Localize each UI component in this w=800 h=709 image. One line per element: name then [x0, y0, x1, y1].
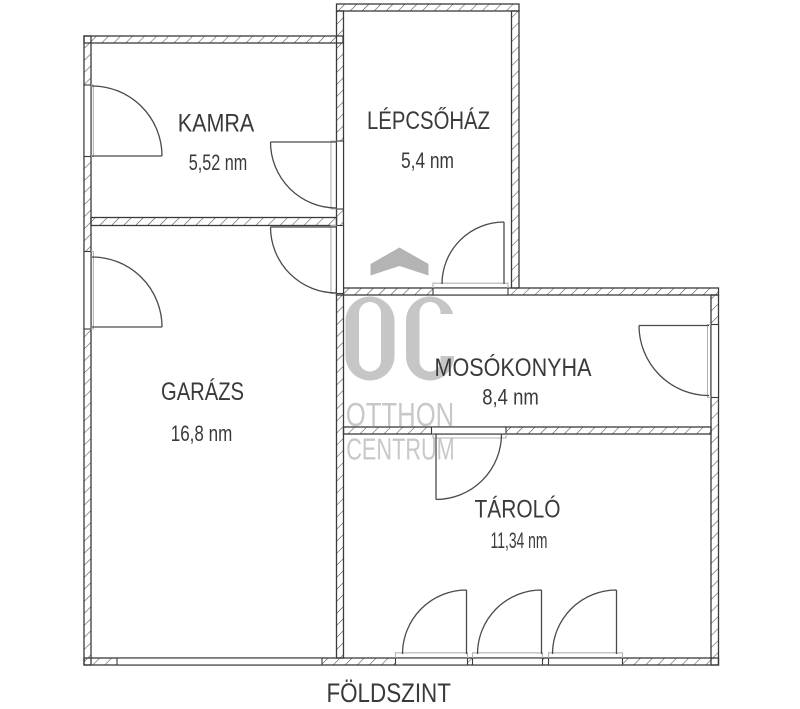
- svg-text:16,8 nm: 16,8 nm: [171, 421, 233, 446]
- svg-text:MOSÓKONYHA: MOSÓKONYHA: [435, 353, 592, 382]
- svg-text:11,34 nm: 11,34 nm: [491, 528, 548, 553]
- svg-text:8,4 nm: 8,4 nm: [482, 385, 539, 410]
- svg-text:TÁROLÓ: TÁROLÓ: [475, 495, 561, 524]
- svg-text:CENTRUM: CENTRUM: [346, 432, 455, 467]
- svg-text:5,52 nm: 5,52 nm: [189, 150, 248, 175]
- svg-text:FÖLDSZINT: FÖLDSZINT: [326, 678, 451, 708]
- svg-text:KAMRA: KAMRA: [178, 110, 255, 138]
- svg-text:LÉPCSŐHÁZ: LÉPCSŐHÁZ: [367, 106, 490, 135]
- svg-text:GARÁZS: GARÁZS: [161, 377, 244, 406]
- svg-text:5,4 nm: 5,4 nm: [401, 148, 454, 173]
